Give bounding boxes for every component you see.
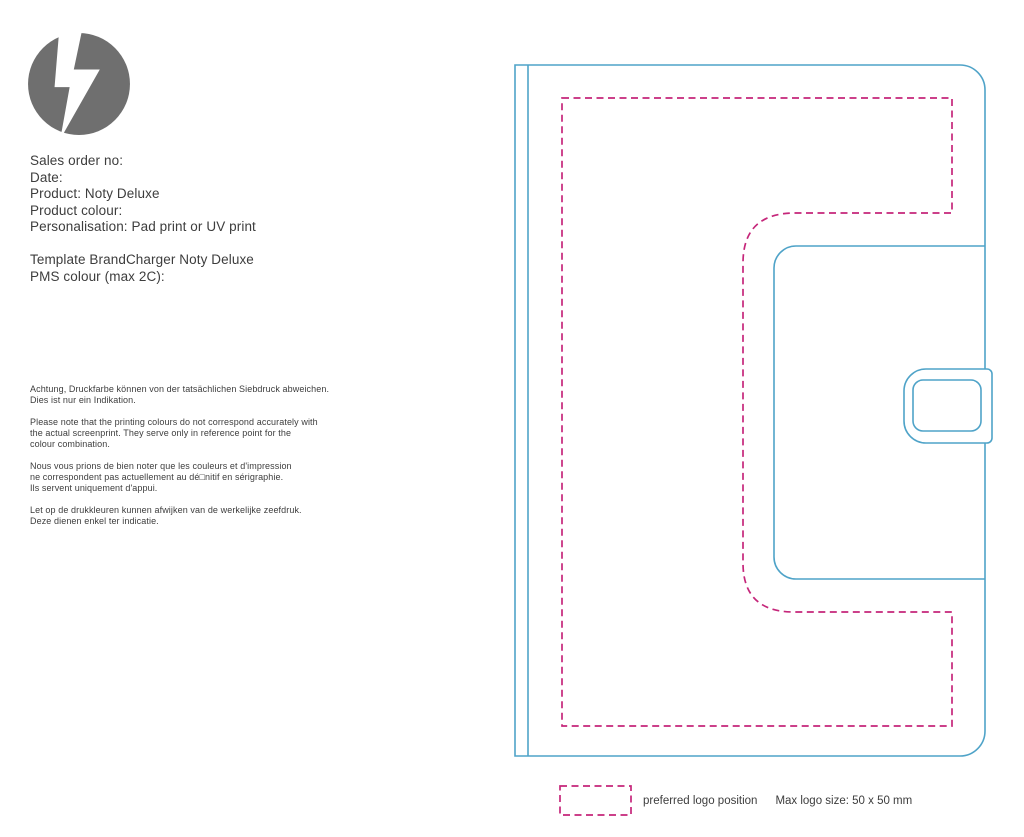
legend-label: preferred logo position	[643, 795, 757, 807]
notebook-template-drawing	[0, 0, 1024, 837]
legend-swatch	[558, 784, 633, 817]
legend-max-logo-size: Max logo size: 50 x 50 mm	[775, 795, 912, 807]
clasp-inner-outline	[913, 380, 981, 431]
legend-row: preferred logo position Max logo size: 5…	[558, 784, 912, 817]
logo-position-region	[562, 98, 952, 726]
legend-swatch-rect	[560, 786, 631, 815]
